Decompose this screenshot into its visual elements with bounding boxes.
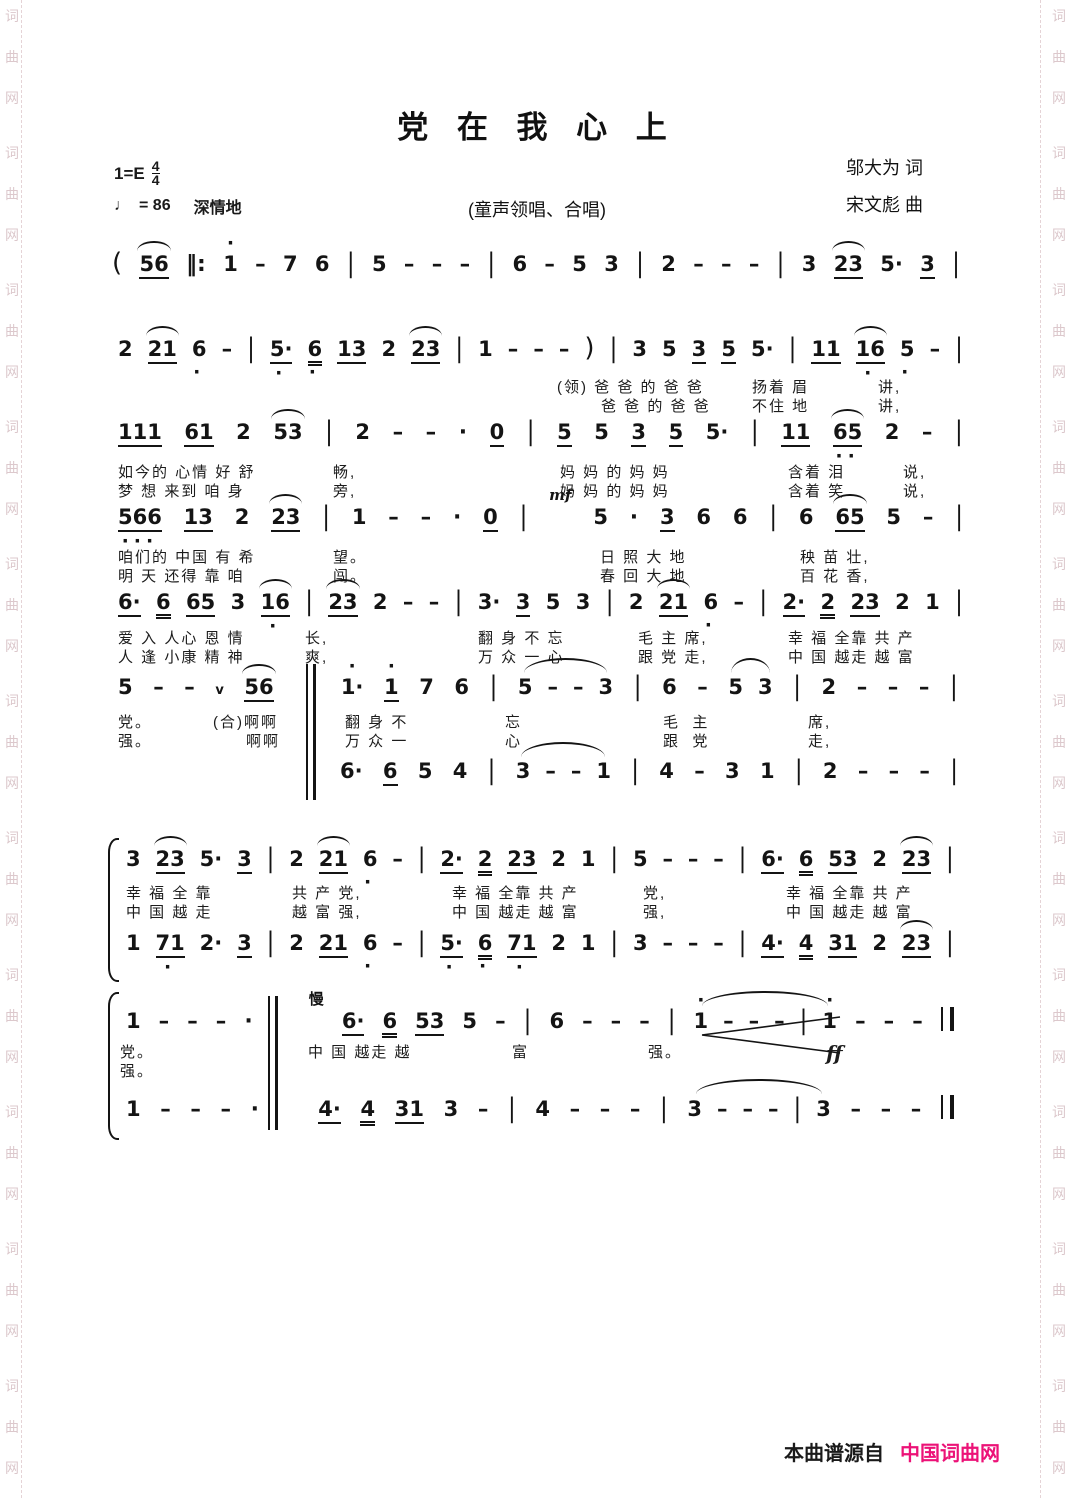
note-token: 0 [490, 420, 505, 447]
lyric-segment: 中 国 越走 越 富 [788, 646, 915, 667]
watermark-char: 词 [5, 1102, 19, 1122]
crescendo-hairpin [700, 1014, 842, 1061]
tie-group: 3––1 [516, 759, 611, 783]
note-token: 2 [235, 505, 250, 529]
section-double-barline [306, 664, 316, 800]
lyric-segment: 幸 福 全 靠 [126, 882, 213, 903]
dash-note: – [630, 1097, 641, 1121]
open-paren: ( [112, 248, 122, 278]
octave-dot-above: · [349, 661, 356, 671]
octave-dot-below: · [364, 961, 376, 971]
barline: | [946, 928, 954, 958]
note-token: 2 [885, 420, 900, 444]
barline: | [777, 249, 785, 279]
rhythm-dot: · [251, 1097, 259, 1122]
note-token: 23 [271, 505, 300, 532]
dash-note: – [721, 252, 732, 276]
watermark-char: 曲 [1052, 47, 1066, 67]
note-token: 3 [920, 252, 935, 279]
dash-note: – [639, 1009, 650, 1033]
lyric-segment: 心 [505, 730, 522, 751]
lyric-segment: 爱 入 人心 恩 情 [118, 627, 245, 648]
note-token: 5 [662, 337, 677, 361]
watermark-char: 网 [1052, 910, 1066, 930]
note-token: 53 [273, 420, 302, 444]
lyric-segment: 幸 福 全靠 共 产 [452, 882, 579, 903]
lyricist-credit: 邬大为 词 [846, 150, 923, 187]
slur-arc [269, 494, 302, 504]
slur-arc [137, 241, 170, 251]
lyric-segment: 说, [903, 480, 926, 501]
watermark-char: 曲 [5, 1006, 19, 1026]
note-token: 7 [283, 252, 298, 276]
dash-note: – [571, 759, 582, 783]
octave-dot-above: · [388, 661, 395, 671]
watermark-char: 网 [5, 1458, 19, 1478]
note-token: 1 [126, 1009, 141, 1033]
note-token: 5 [372, 252, 387, 276]
note-token: 6 [156, 590, 171, 619]
sheet-music-page: 党 在 我 心 上 邬大为 词 宋文彪 曲 1=E 4 4 ♩ = 86 深情地… [0, 0, 1074, 1498]
dash-note: – [688, 847, 699, 871]
rhythm-dot: · [244, 1009, 252, 1034]
note-token: 13 [184, 505, 213, 532]
barline: | [751, 417, 759, 447]
dash-note: – [544, 252, 555, 276]
barline: | [610, 334, 618, 364]
dash-note: – [582, 1009, 593, 1033]
lyric-segment: 畅, [333, 461, 356, 482]
final-barline [941, 1007, 954, 1031]
dash-note: – [713, 847, 724, 871]
note-token: 6· [342, 1009, 365, 1036]
watermark-char: 网 [5, 910, 19, 930]
note-token: 5 [728, 675, 743, 699]
note-token: 5 [886, 505, 901, 529]
lyric-segment: 党。 [118, 711, 152, 732]
lyric-segment: 中 国 越走 越 富 [452, 901, 579, 922]
dash-note: – [216, 1009, 227, 1033]
watermark-char: 曲 [1052, 732, 1066, 752]
note-token: 56 [139, 252, 168, 279]
lyric-segment: 席, [808, 711, 831, 732]
note-token: 5· [200, 847, 223, 871]
music-line: 2216·–|5··6·13223|1–––)|35355·|1116·5·–| [118, 333, 963, 363]
octave-dot-below: · [269, 621, 281, 631]
octave-dot-below: · [446, 962, 458, 972]
lyric-segment: 翻 身 不 忘 [478, 627, 565, 648]
watermark-char: 网 [5, 225, 19, 245]
note-token: 5 [633, 847, 648, 871]
note-token: 5· [706, 420, 729, 444]
barline: | [488, 756, 496, 786]
note-token: 2 [373, 590, 388, 614]
watermark-char: 词 [1052, 691, 1066, 711]
lyric-segment: 幸 福 全靠 共 产 [788, 627, 915, 648]
dash-note: – [403, 590, 414, 614]
dash-note: – [570, 1097, 581, 1121]
note-token: 5 [593, 505, 608, 529]
final-barline [941, 1095, 954, 1119]
watermark-char: 词 [5, 828, 19, 848]
footer-site-name: 中国词曲网 [900, 1437, 1000, 1466]
note-token: 6· [192, 337, 207, 361]
note-token: 3 [816, 1097, 831, 1121]
tie-arc [731, 658, 770, 673]
section-double-barline [268, 996, 278, 1130]
barline: | [610, 844, 618, 874]
slur-arc [271, 409, 304, 419]
watermark-char: 曲 [5, 458, 19, 478]
note-token: 6 [454, 675, 469, 699]
dash-note: – [881, 1097, 892, 1121]
watermark-char: 词 [1052, 143, 1066, 163]
tie-group: 53 [728, 675, 772, 699]
note-token: 53 [828, 847, 857, 874]
dash-note: – [545, 759, 556, 783]
watermark-char: 网 [1052, 362, 1066, 382]
watermark-char: 词 [5, 6, 19, 26]
note-token: 6· [118, 590, 141, 617]
note-token: 5 [572, 252, 587, 276]
note-token: 6· [761, 847, 784, 874]
note-token: 2 [820, 590, 835, 619]
music-line: (56‖:1·–76|5–––|6–53|2–––|3235·3| [112, 248, 960, 278]
slur-arc [317, 836, 350, 846]
note-token: 53 [415, 1009, 444, 1036]
lyric-segment: 越 富 强, [292, 901, 362, 922]
note-token: 2 [629, 590, 644, 614]
slur-arc [409, 326, 442, 336]
lyric-segment: (合)啊啊 [213, 711, 278, 732]
watermark-char: 曲 [1052, 184, 1066, 204]
note-token: 2 [355, 420, 370, 444]
watermark-char: 曲 [1052, 1006, 1066, 1026]
lyric-segment: 党, [643, 882, 666, 903]
note-token: 2· [783, 590, 806, 617]
note-token: 5 [546, 590, 561, 614]
barline: | [660, 1094, 668, 1124]
barline: | [946, 844, 954, 874]
system-brace [108, 838, 119, 982]
note-token: 1 [352, 505, 367, 529]
lyric-segment: 强, [643, 901, 666, 922]
note-token: 6· [363, 931, 378, 955]
watermark-char: 词 [5, 691, 19, 711]
barline: | [490, 672, 498, 702]
note-token: 2 [551, 931, 566, 955]
watermark-char: 网 [5, 499, 19, 519]
note-token: 3 [237, 847, 252, 874]
note-token: 6 [799, 847, 814, 876]
lyric-segment: 爸 爸 的 爸 爸 [601, 395, 711, 416]
dynamic-mark: mf [549, 486, 571, 504]
watermark-char: 曲 [5, 732, 19, 752]
note-token: 11 [811, 337, 840, 364]
lyric-segment: 讲, [878, 395, 901, 416]
octave-dot-below: · [516, 962, 528, 972]
music-line: 11161253|2––·0|55355·|1165··2–| [118, 419, 963, 449]
dash-note: – [911, 1097, 922, 1121]
note-token: 16· [856, 337, 885, 364]
watermark-char: 网 [5, 773, 19, 793]
note-token: 2 [118, 337, 133, 361]
note-token: 5 [462, 1009, 477, 1033]
watermark-char: 词 [1052, 1239, 1066, 1259]
note-token: 3 [802, 252, 817, 276]
barline: | [322, 502, 330, 532]
watermark-char: 网 [5, 1184, 19, 1204]
note-token: 4· [318, 1097, 341, 1124]
note-token: 11 [781, 420, 810, 447]
octave-dot-below: · [309, 367, 321, 377]
watermark-char: 网 [1052, 1047, 1066, 1067]
note-token: 23 [902, 931, 931, 958]
octave-dot-below: · [193, 367, 205, 377]
watermark-char: 词 [1052, 554, 1066, 574]
watermark-char: 曲 [1052, 1417, 1066, 1437]
note-token: 3 [631, 420, 646, 447]
note-token: 2 [236, 420, 251, 444]
note-token: 2 [289, 847, 304, 871]
tie-arc [521, 742, 605, 757]
watermark-char: 词 [5, 417, 19, 437]
performance-subtitle: (童声领唱、合唱) [0, 196, 1074, 222]
note-token: 3· [478, 590, 501, 614]
note-token: 6 [549, 1009, 564, 1033]
note-token: 61 [184, 420, 213, 447]
watermark-dashed-line [21, 0, 22, 1498]
note-token: 3 [231, 590, 246, 614]
dash-note: – [153, 675, 164, 699]
note-token: 6· [478, 931, 493, 960]
dash-note: – [688, 931, 699, 955]
note-token: 3 [516, 759, 531, 783]
note-token: 1·· [341, 675, 364, 699]
note-token: 6· [704, 590, 719, 614]
watermark-char: 曲 [5, 321, 19, 341]
note-token: 1· [223, 252, 238, 276]
barline: | [789, 334, 797, 364]
note-token: 1 [126, 931, 141, 955]
barline: | [610, 928, 618, 958]
watermark-char: 网 [1052, 1321, 1066, 1341]
note-token: 23 [850, 590, 879, 617]
dash-note: – [222, 337, 233, 361]
lyric-segment: 毛 主 [663, 711, 709, 732]
note-token: 5· [900, 337, 915, 361]
music-line: 6·654|3––1|4–31|2–––| [340, 758, 958, 788]
watermark-char: 词 [1052, 417, 1066, 437]
watermark-char: 曲 [5, 1417, 19, 1437]
note-token: 1 [925, 590, 940, 614]
octave-dot-below: · [479, 961, 491, 971]
lyric-segment: 毛 主 席, [638, 627, 708, 648]
watermark-char: 曲 [1052, 869, 1066, 889]
barline: | [631, 756, 639, 786]
note-token: 5 [721, 337, 736, 364]
barline: | [418, 844, 426, 874]
note-token: 3 [516, 590, 531, 617]
music-line: 6·665316·|232––|3·353|2216·–|2·22321| [118, 589, 963, 619]
barline: | [793, 1094, 801, 1124]
dash-note: – [749, 252, 760, 276]
dash-note: – [713, 931, 724, 955]
lyric-segment: 万 众 一 [345, 730, 408, 751]
lyric-segment: 日 照 大 地 [600, 546, 687, 567]
dash-note: – [392, 847, 403, 871]
dash-note: – [663, 931, 674, 955]
note-token: 2 [872, 931, 887, 955]
barline: | [769, 502, 777, 532]
note-token: 慢 [309, 988, 324, 1009]
note-token: 3 [660, 505, 675, 532]
barline: | [267, 928, 275, 958]
barline: | [325, 417, 333, 447]
lyric-segment: 中 国 越走 越 富 [786, 901, 913, 922]
note-token: 5·· [270, 337, 293, 364]
rhythm-dot: · [459, 420, 467, 445]
octave-dot-below: · [164, 962, 176, 972]
note-token: 4 [360, 1097, 375, 1126]
dash-note: – [697, 675, 708, 699]
note-token: 1 [581, 847, 596, 871]
note-token: 4· [761, 931, 784, 958]
dash-note: – [930, 337, 941, 361]
note-token: 23 [507, 847, 536, 874]
lyric-segment: 妈 妈 的 妈 妈 [560, 480, 670, 501]
watermark-char: 词 [1052, 6, 1066, 26]
dash-note: – [388, 505, 399, 529]
slur-arc [831, 409, 864, 419]
barline: | [955, 502, 963, 532]
dash-note: – [717, 1097, 728, 1121]
watermark-char: 曲 [5, 47, 19, 67]
dash-note: – [187, 1009, 198, 1033]
dash-note: – [221, 1097, 232, 1121]
note-token: 6 [696, 505, 711, 529]
watermark-char: 曲 [1052, 458, 1066, 478]
dash-note: – [404, 252, 415, 276]
octave-dot-below: ··· [122, 536, 159, 546]
lyric-segment: 幸 福 全靠 共 产 [786, 882, 913, 903]
note-token: 5·· [440, 931, 463, 958]
note-token: 0 [483, 505, 498, 532]
note-token: 31 [828, 931, 857, 958]
close-paren: ) [584, 333, 594, 363]
lyric-segment: 梦 想 来到 咱 身 [118, 480, 245, 501]
watermark-char: 网 [5, 636, 19, 656]
watermark-char: 词 [1052, 1376, 1066, 1396]
note-token: 56 [244, 675, 273, 702]
note-token: 2 [289, 931, 304, 955]
note-token: 2 [381, 337, 396, 361]
note-token: 23 [411, 337, 440, 364]
watermark-char: 曲 [1052, 1280, 1066, 1300]
lyric-segment: 中 国 越 走 [126, 901, 213, 922]
lyric-segment: 旁, [333, 480, 356, 501]
watermark-char: 网 [1052, 1184, 1066, 1204]
dash-note: – [255, 252, 266, 276]
note-token: 3 [687, 1097, 702, 1121]
lyric-segment: 翻 身 不 [345, 711, 408, 732]
note-token: 23 [834, 252, 863, 279]
watermark-char: 曲 [5, 1280, 19, 1300]
watermark-char: 网 [1052, 88, 1066, 108]
note-token: 5 [594, 420, 609, 444]
note-token: 6· [363, 847, 378, 871]
slur-arc [154, 836, 187, 846]
dash-note: – [159, 1009, 170, 1033]
barline: | [634, 672, 642, 702]
barline: | [739, 844, 747, 874]
dash-note: – [850, 1097, 861, 1121]
music-line: 171·2·3|2216·–|5··6·71·21|3–––|4·431223| [126, 930, 954, 960]
dash-note: – [611, 1009, 622, 1033]
watermark-char: 网 [1052, 1458, 1066, 1478]
note-token: 3 [692, 337, 707, 364]
lyric-segment: 咱们的 中国 有 希 [118, 546, 256, 567]
lyric-segment: 跟 党 走, [638, 646, 708, 667]
watermark-char: 曲 [5, 1143, 19, 1163]
note-token: 7 [419, 675, 434, 699]
dash-note: – [742, 1097, 753, 1121]
barline: | [950, 672, 958, 702]
watermark-dashed-line [1040, 0, 1041, 1498]
note-token: 3 [758, 675, 773, 699]
note-token: 1 [581, 931, 596, 955]
dash-note: – [190, 1097, 201, 1121]
dash-note: – [855, 1009, 866, 1033]
lyric-segment: 中 国 越走 越 [308, 1041, 412, 1062]
lyric-segment: 长, [305, 627, 328, 648]
barline: | [487, 249, 495, 279]
note-token: 5· [751, 337, 774, 361]
watermark-char: 曲 [1052, 321, 1066, 341]
note-token: 5 [669, 420, 684, 447]
note-token: 21 [319, 931, 348, 958]
dash-note: – [857, 675, 868, 699]
barline: | [952, 249, 960, 279]
dash-note: – [421, 505, 432, 529]
octave-dot-below: · [864, 368, 876, 378]
note-token: 3 [444, 1097, 459, 1121]
watermark-char: 词 [5, 965, 19, 985]
note-token: 2· [200, 931, 223, 955]
breath-mark: v [215, 683, 223, 698]
dash-note: – [432, 252, 443, 276]
tie-arc [696, 1079, 822, 1094]
note-token: 2 [551, 847, 566, 871]
lyric-segment: 不住 地 [752, 395, 809, 416]
note-token: 6 [662, 675, 677, 699]
tie-group: 3–––|3 [687, 1096, 831, 1122]
lyric-segment: 跟 党 [663, 730, 709, 751]
note-token: 71· [507, 931, 536, 958]
lyric-segment: 如今的 心情 好 舒 [118, 461, 256, 482]
watermark-char: 词 [5, 554, 19, 574]
barline: | [267, 844, 275, 874]
watermark-char: 曲 [5, 595, 19, 615]
lyric-segment: (领) 爸 爸 的 爸 爸 [557, 376, 704, 397]
note-token: 6 [512, 252, 527, 276]
dash-note: – [508, 337, 519, 361]
note-token: 65 [186, 590, 215, 617]
note-token: 2 [872, 847, 887, 871]
lyric-segment: 百 花 香, [800, 565, 870, 586]
dash-note: – [559, 337, 570, 361]
dash-note: – [184, 675, 195, 699]
